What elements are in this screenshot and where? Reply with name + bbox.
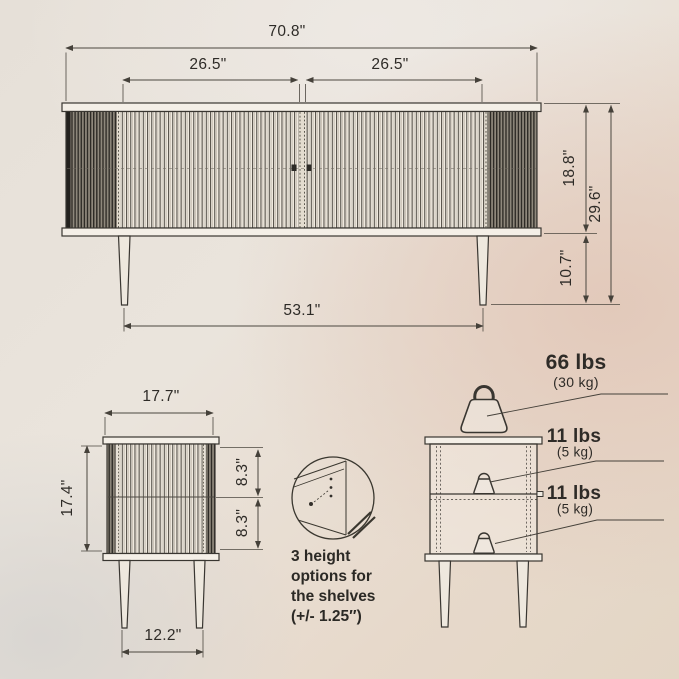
shelf-detail-magnifier xyxy=(292,457,375,539)
detail-circle xyxy=(292,457,374,539)
load-top-band xyxy=(425,437,542,444)
load-bottom-kg-label: (5 kg) xyxy=(557,502,593,517)
load-top-kg-label: (30 kg) xyxy=(553,374,599,390)
load-leg-right xyxy=(517,561,529,627)
front-leg-right xyxy=(477,236,489,305)
side-depth-label: 17.7" xyxy=(142,388,179,406)
front-left-edge-shadow xyxy=(67,112,71,228)
furniture-dimensions-diagram: 70.8" 26.5" 26.5" 53.1" 18.8" 29.6" 10.7… xyxy=(0,0,679,679)
shelf-pin-holes xyxy=(330,478,333,498)
front-bottom-band xyxy=(62,228,541,236)
front-leg-left xyxy=(119,236,131,305)
load-bottom-band xyxy=(425,554,542,561)
front-door-right-label: 26.5" xyxy=(371,56,408,74)
load-shelf-kg-label: (5 kg) xyxy=(557,445,593,460)
side-top-band xyxy=(103,437,219,444)
door-handle-left xyxy=(292,165,297,172)
weight-icon-large xyxy=(461,387,507,433)
front-total-width-label: 70.8" xyxy=(268,23,305,41)
load-leg-left xyxy=(439,561,451,627)
side-leg-right xyxy=(194,561,205,629)
shelf-pin-tab xyxy=(537,492,543,497)
front-leg-span-label: 53.1" xyxy=(283,302,320,320)
front-top-band xyxy=(62,103,541,112)
side-height-label: 17.4" xyxy=(59,479,77,516)
shelf-options-note: 3 height options for the shelves (+/- 1.… xyxy=(291,547,411,627)
door-handle-right xyxy=(307,165,312,172)
front-side-panel-right xyxy=(487,112,537,228)
load-capacity-drawing xyxy=(425,387,668,628)
front-side-panel-left xyxy=(67,112,118,228)
load-top-lbs-label: 66 lbs xyxy=(546,351,607,375)
front-door-left-label: 26.5" xyxy=(189,56,226,74)
side-view-drawing xyxy=(103,437,219,628)
side-fluted-body xyxy=(107,444,215,554)
front-body-height-label: 18.8" xyxy=(561,149,579,186)
front-total-height-label: 29.6" xyxy=(587,185,605,222)
side-leg-left xyxy=(119,561,130,629)
front-leg-height-label: 10.7" xyxy=(558,249,576,286)
shelf-pin-icon xyxy=(309,502,313,506)
front-view-drawing xyxy=(62,103,541,305)
side-shelf-upper-label: 8.3" xyxy=(234,458,252,486)
side-bottom-band xyxy=(103,554,219,561)
side-shelf-lower-label: 8.3" xyxy=(234,509,252,537)
side-leg-span-label: 12.2" xyxy=(144,627,181,645)
